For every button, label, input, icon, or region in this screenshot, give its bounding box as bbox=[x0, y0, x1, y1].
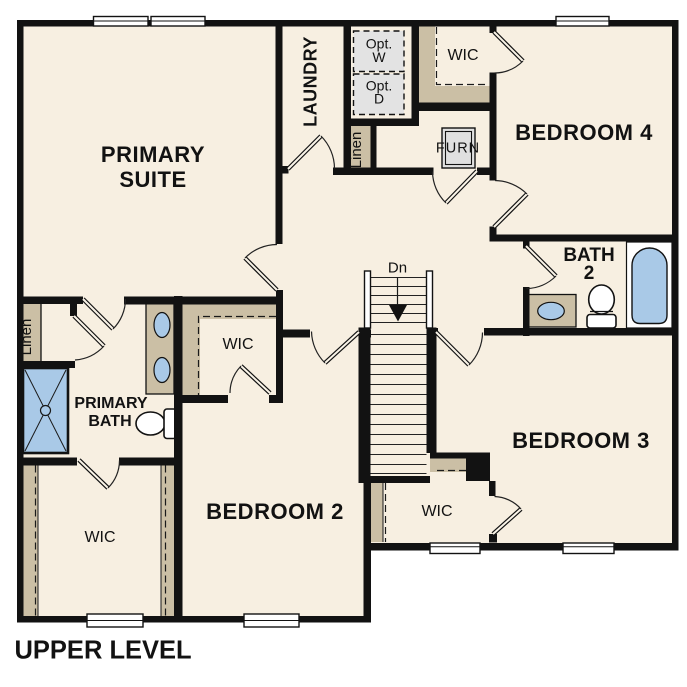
svg-text:BEDROOM 4: BEDROOM 4 bbox=[515, 120, 653, 145]
svg-text:2: 2 bbox=[584, 263, 595, 284]
svg-text:LAUNDRY: LAUNDRY bbox=[301, 36, 321, 127]
svg-text:BEDROOM 3: BEDROOM 3 bbox=[512, 428, 650, 453]
svg-text:UPPER LEVEL: UPPER LEVEL bbox=[15, 637, 192, 665]
svg-text:WIC: WIC bbox=[84, 529, 115, 546]
svg-text:Dn: Dn bbox=[388, 260, 407, 277]
svg-text:BEDROOM 2: BEDROOM 2 bbox=[206, 499, 344, 524]
svg-text:WIC: WIC bbox=[222, 336, 253, 353]
svg-text:D: D bbox=[374, 91, 384, 107]
svg-text:W: W bbox=[372, 49, 386, 65]
svg-text:WIC: WIC bbox=[447, 47, 478, 64]
svg-text:PRIMARY: PRIMARY bbox=[101, 142, 205, 167]
svg-text:PRIMARY: PRIMARY bbox=[74, 395, 148, 412]
svg-text:FURN: FURN bbox=[436, 141, 480, 157]
svg-text:SUITE: SUITE bbox=[119, 167, 186, 192]
svg-text:BATH: BATH bbox=[88, 413, 131, 430]
svg-text:WIC: WIC bbox=[421, 503, 452, 520]
